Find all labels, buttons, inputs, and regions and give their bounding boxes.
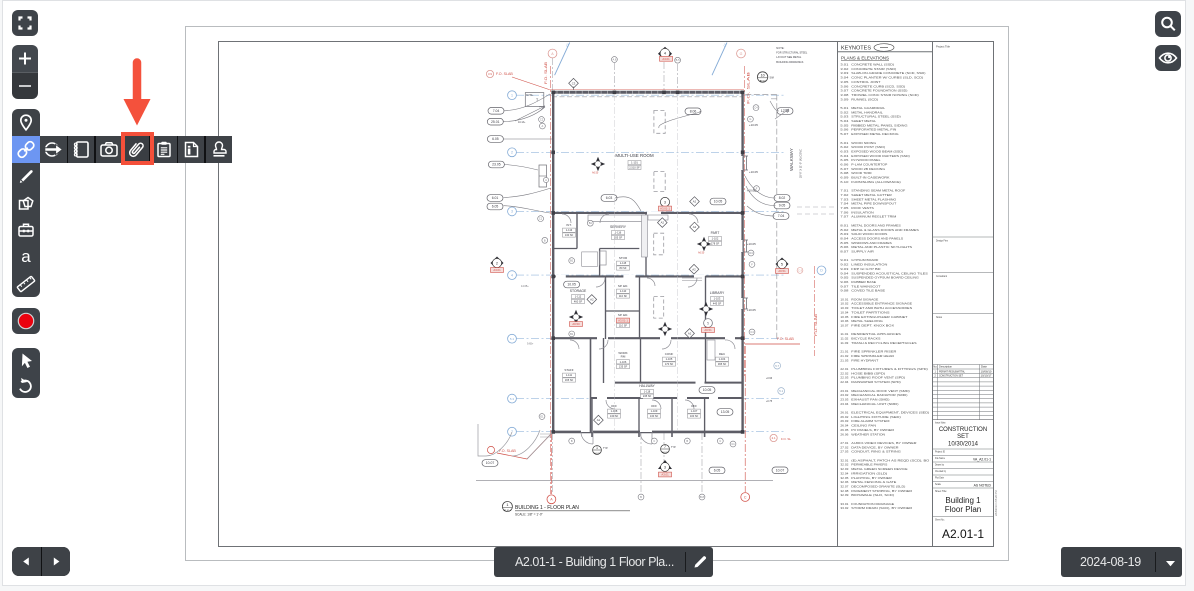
svg-text:A2: A2 (693, 200, 697, 204)
svg-text:7.07: 7.07 (840, 215, 849, 219)
svg-text:INT.: INT. (566, 223, 572, 227)
svg-text:6.02: 6.02 (840, 145, 849, 149)
svg-text:10.13+: 10.13+ (518, 121, 526, 124)
svg-text:9.05: 9.05 (840, 276, 849, 280)
svg-text:A2.01-1: A2.01-1 (504, 509, 512, 512)
svg-text:22.03: 22.03 (840, 376, 848, 380)
svg-text:A2: A2 (590, 298, 594, 302)
svg-text:5.1: 5.1 (779, 389, 783, 393)
svg-text:Notes: Notes (936, 315, 943, 319)
svg-text:6.08: 6.08 (840, 171, 849, 175)
svg-text:WINDOWS AND FRAMES: WINDOWS AND FRAMES (851, 241, 892, 245)
svg-text:26.06: 26.06 (840, 432, 848, 436)
svg-text:10/08/10: 10/08/10 (981, 370, 993, 373)
svg-text:PV PANELS, BY OWNER: PV PANELS, BY OWNER (851, 428, 894, 432)
svg-text:3.07: 3.07 (840, 89, 849, 93)
svg-text:A3.01: A3.01 (662, 57, 670, 61)
svg-text:165 SF: 165 SF (565, 378, 574, 382)
svg-text:27.02: 27.02 (840, 445, 848, 449)
svg-text:5.1: 5.1 (510, 337, 515, 341)
svg-text:A3.01-1: A3.01-1 (660, 207, 670, 211)
svg-text:C4: C4 (754, 106, 758, 110)
svg-text:32.02: 32.02 (840, 463, 848, 467)
svg-text:Project ID: Project ID (935, 451, 945, 454)
svg-text:F.O. SLAB: F.O. SLAB (747, 71, 751, 104)
svg-text:2/18/2013 1:55:26 PM: 2/18/2013 1:55:26 PM (994, 490, 998, 516)
svg-text:11.03: 11.03 (840, 341, 848, 345)
svg-text:RM: RM (621, 355, 626, 359)
svg-text:BIOSWALE (SLD, SCD): BIOSWALE (SLD, SCD) (851, 493, 894, 497)
svg-text:10/30/2014: 10/30/2014 (948, 442, 979, 448)
svg-text:FURNISHING (ALLOWANCE): FURNISHING (ALLOWANCE) (851, 180, 901, 184)
svg-text:245 SF: 245 SF (643, 394, 652, 398)
svg-text:WEATHER STATION: WEATHER STATION (851, 432, 885, 436)
svg-text:7.04: 7.04 (493, 109, 500, 113)
svg-text:KEYNOTES: KEYNOTES (841, 46, 871, 52)
svg-text:10/10/17: 10/10/17 (981, 375, 993, 378)
svg-text:1-118: 1-118 (644, 390, 651, 394)
svg-text:7.03: 7.03 (840, 197, 849, 201)
svg-text:EXPOSED WOOD RAFTERS (SSD): EXPOSED WOOD RAFTERS (SSD) (851, 154, 910, 158)
svg-text:9.05: 9.05 (779, 204, 786, 208)
svg-text:CONCRETE WALL (SSD): CONCRETE WALL (SSD) (851, 63, 894, 67)
svg-text:C: C (719, 439, 721, 443)
svg-text:FOR STRUCTURAL STEEL: FOR STRUCTURAL STEEL (776, 51, 807, 55)
svg-text:A3.01: A3.01 (661, 473, 669, 477)
svg-text:6.01: 6.01 (492, 196, 499, 200)
svg-text:9.01: 9.01 (840, 258, 849, 262)
svg-text:SERVERY: SERVERY (610, 225, 627, 229)
svg-text:1-101: 1-101 (631, 161, 638, 165)
svg-text:CONCRETE FOUNDATION (SSD): CONCRETE FOUNDATION (SSD) (851, 89, 907, 93)
svg-text:+10.05: +10.05 (749, 171, 759, 174)
svg-text:23.02: 23.02 (840, 393, 848, 397)
svg-text:ELECTRICAL EQUIPMENT, DEVICES: ELECTRICAL EQUIPMENT, DEVICES (SED) (851, 411, 929, 415)
svg-text:8.05: 8.05 (840, 241, 849, 245)
svg-text:7: 7 (664, 445, 666, 449)
svg-text:1-109: 1-109 (651, 409, 658, 413)
svg-text:A2: A2 (661, 221, 665, 225)
svg-text:130 SF: 130 SF (650, 414, 659, 418)
svg-text:CONF: CONF (665, 352, 674, 356)
svg-text:5.7: 5.7 (775, 364, 779, 368)
svg-text:A6.50: A6.50 (572, 322, 580, 326)
svg-text:EXPOSED METAL DECKING: EXPOSED METAL DECKING (851, 132, 899, 136)
svg-text:10.06: 10.06 (840, 319, 848, 323)
svg-text:Building 1: Building 1 (945, 496, 981, 505)
svg-text:1-106: 1-106 (620, 360, 627, 364)
svg-text:Consultant: Consultant (936, 274, 947, 278)
svg-text:ALUMINUM REGLET TRIM: ALUMINUM REGLET TRIM (851, 215, 897, 219)
svg-text:Plot Date: Plot Date (935, 477, 945, 480)
svg-text:STORAGE: STORAGE (570, 289, 587, 293)
svg-text:F.O. SLAB: F.O. SLAB (814, 313, 818, 336)
svg-text:B: B (571, 439, 573, 443)
svg-text:3: 3 (511, 210, 513, 214)
svg-text:STAFF: STAFF (564, 368, 573, 372)
svg-text:Design Firm: Design Firm (936, 239, 948, 243)
svg-text:CONSTRUCTION: CONSTRUCTION (939, 427, 987, 433)
svg-text:32.04: 32.04 (840, 471, 848, 475)
svg-text:32.09: 32.09 (840, 493, 848, 497)
svg-text:A6.51: A6.51 (704, 328, 712, 332)
svg-text:14.65+: 14.65+ (521, 285, 529, 288)
svg-text:B: B (686, 439, 688, 443)
svg-text:PLUMBING ROOF VENT (SPD): PLUMBING ROOF VENT (SPD) (851, 376, 905, 380)
svg-text:METAL HANDRAIL: METAL HANDRAIL (851, 110, 883, 114)
svg-text:METAL FENCING & GATE: METAL FENCING & GATE (851, 480, 896, 484)
svg-text:DATA DEVICE, BY OWNER: DATA DEVICE, BY OWNER (851, 445, 898, 449)
svg-text:+10.05: +10.05 (747, 309, 757, 312)
svg-text:10: 10 (761, 74, 765, 78)
svg-text:+0.96: +0.96 (766, 377, 773, 380)
svg-text:SHEET METAL: SHEET METAL (851, 119, 876, 123)
svg-text:Floor Plan: Floor Plan (945, 505, 981, 514)
svg-text:9.08: 9.08 (840, 289, 849, 293)
svg-text:Sheet No.:: Sheet No.: (935, 518, 945, 521)
svg-text:C.9: C.9 (798, 268, 803, 272)
svg-text:10.02: 10.02 (840, 302, 848, 306)
svg-text:9.07: 9.07 (840, 284, 849, 288)
svg-text:D: D (820, 269, 823, 273)
svg-text:4: 4 (664, 52, 666, 56)
svg-text:OFF: OFF (691, 404, 697, 408)
svg-text:F.O. SLAB: F.O. SLAB (496, 72, 513, 76)
svg-text:10.04: 10.04 (840, 310, 848, 314)
svg-text:AS NOTED: AS NOTED (974, 484, 992, 488)
svg-text:F.O. SL: F.O. SL (781, 437, 791, 441)
svg-text:CONDUIT, RING & STRING: CONDUIT, RING & STRING (851, 450, 902, 454)
svg-text:Checked by: Checked by (935, 470, 947, 473)
svg-text:1-104: 1-104 (719, 357, 726, 361)
svg-text:1-113: 1-113 (566, 228, 573, 232)
svg-text:3: 3 (664, 465, 666, 469)
svg-text:9.65+: 9.65+ (527, 343, 534, 346)
svg-text:10.07: 10.07 (840, 324, 848, 328)
svg-text:PART: PART (711, 231, 720, 235)
svg-text:1-103: 1-103 (714, 297, 721, 301)
svg-text:METAL DOORS AND FRAMES: METAL DOORS AND FRAMES (851, 223, 901, 227)
svg-text:TRASH & RECYCLING RECEPTACLES: TRASH & RECYCLING RECEPTACLES (851, 341, 916, 345)
svg-text:3.9: 3.9 (488, 72, 492, 76)
svg-text:30.55+: 30.55+ (526, 94, 534, 97)
svg-text:No.: No. (933, 366, 937, 369)
svg-text:C3: C3 (572, 81, 576, 85)
svg-text:3.09: 3.09 (840, 97, 849, 101)
svg-text:3.01: 3.01 (840, 63, 849, 67)
svg-text:LAYOUT SEE METAL: LAYOUT SEE METAL (776, 55, 801, 59)
svg-text:B1: B1 (570, 259, 574, 263)
svg-text:WOOD POST (SSD): WOOD POST (SSD) (851, 145, 885, 149)
svg-text:G: G (740, 52, 743, 56)
svg-text:8.02: 8.02 (779, 196, 786, 200)
svg-text:8.07: 8.07 (840, 250, 849, 254)
svg-text:METAL SHELVING: METAL SHELVING (851, 319, 883, 323)
svg-text:22.01: 22.01 (840, 367, 848, 371)
svg-text:WALKWAY: WALKWAY (789, 148, 794, 171)
svg-text:F.O. SLAB: F.O. SLAB (777, 337, 794, 341)
svg-text:SUPPLY AIR: SUPPLY AIR (851, 250, 874, 254)
svg-text:NOTE:: NOTE: (776, 46, 784, 50)
svg-text:C1: C1 (731, 442, 735, 446)
svg-text:395 SF: 395 SF (718, 362, 727, 366)
svg-text:9.03: 9.03 (840, 267, 849, 271)
svg-text:1-110: 1-110 (620, 289, 627, 293)
svg-text:10.05: 10.05 (703, 388, 712, 392)
svg-text:SET: SET (957, 434, 969, 440)
svg-text:1-116: 1-116 (615, 231, 622, 235)
svg-text:A6.02: A6.02 (662, 451, 669, 454)
svg-text:5: 5 (707, 321, 709, 325)
svg-text:1-112: 1-112 (575, 295, 582, 299)
svg-text:TYP.: TYP. (671, 446, 676, 449)
svg-text:33.02: 33.02 (840, 506, 848, 510)
svg-text:A2: A2 (693, 225, 697, 229)
svg-text:WOOD TRIM: WOOD TRIM (851, 171, 872, 175)
svg-text:FIRE ALARM SYSTEM: FIRE ALARM SYSTEM (851, 419, 890, 423)
svg-text:+0.75: +0.75 (766, 400, 773, 403)
svg-text:7.05: 7.05 (840, 206, 849, 210)
svg-text:1: 1 (511, 94, 513, 98)
svg-text:B: B (640, 495, 642, 499)
svg-text:B.5: B.5 (676, 58, 680, 62)
svg-text:178 SF: 178 SF (711, 241, 720, 245)
svg-text:IRRIGATION (SLD): IRRIGATION (SLD) (851, 471, 887, 475)
svg-text:8.03: 8.03 (840, 232, 849, 236)
svg-text:FIRE DEPT. KNOX BOX: FIRE DEPT. KNOX BOX (851, 324, 894, 328)
svg-text:+10.05: +10.05 (749, 124, 759, 127)
svg-text:BUILDING 1 - FLOOR PLAN: BUILDING 1 - FLOOR PLAN (515, 505, 579, 511)
svg-text:Drawn by: Drawn by (935, 464, 945, 467)
svg-text:10.07: 10.07 (486, 461, 495, 465)
svg-text:2: 2 (511, 151, 513, 155)
svg-text:6.05: 6.05 (714, 469, 721, 473)
svg-text:5.04: 5.04 (840, 119, 849, 123)
svg-text:PERMIT RESUBMITTAL: PERMIT RESUBMITTAL (939, 370, 966, 373)
svg-text:2: 2 (496, 261, 498, 265)
svg-text:8.01: 8.01 (840, 223, 849, 227)
svg-text:TOILET PARTITIONS: TOILET PARTITIONS (851, 310, 889, 314)
svg-text:8.06: 8.06 (690, 110, 697, 114)
svg-text:21.03: 21.03 (840, 358, 848, 362)
svg-text:A2.01-1: A2.01-1 (942, 527, 984, 541)
svg-text:10.07: 10.07 (776, 469, 785, 473)
svg-text:VA_A2.01-1: VA_A2.01-1 (973, 458, 991, 462)
svg-text:ACCESSIBLE ENTRANCE SIGNAGE: ACCESSIBLE ENTRANCE SIGNAGE (851, 302, 912, 306)
svg-text:SOLID WOOD DOORS: SOLID WOOD DOORS (851, 232, 887, 236)
svg-text:170 SF: 170 SF (665, 362, 674, 366)
svg-text:23.05: 23.05 (492, 163, 501, 167)
svg-text:A.6: A.6 (612, 58, 616, 62)
svg-text:MECHANICAL RADIATOR (SMD): MECHANICAL RADIATOR (SMD) (851, 393, 907, 397)
svg-text:205 SF: 205 SF (614, 235, 623, 239)
svg-text:HALLWAY: HALLWAY (639, 384, 655, 388)
svg-text:B1: B1 (570, 332, 574, 336)
svg-text:2.1: 2.1 (772, 436, 776, 440)
svg-text:Issue Note:: Issue Note: (935, 422, 946, 425)
svg-text:5.3: 5.3 (510, 397, 515, 401)
svg-text:SP. ED.: SP. ED. (618, 284, 628, 288)
svg-text:3.03: 3.03 (840, 71, 849, 75)
svg-text:1: 1 (506, 503, 508, 507)
svg-text:A6.51: A6.51 (778, 269, 786, 273)
svg-text:5.07: 5.07 (840, 132, 849, 136)
svg-text:130 SF: 130 SF (565, 233, 574, 237)
svg-text:A6.50: A6.50 (592, 172, 599, 175)
svg-text:MECHANICAL UNIT (SMD): MECHANICAL UNIT (SMD) (851, 402, 898, 406)
svg-text:C2: C2 (540, 118, 544, 122)
svg-text:21.01: 21.01 (840, 350, 848, 354)
svg-text:MULTI-USE ROOM: MULTI-USE ROOM (615, 153, 654, 158)
svg-text:A2: A2 (688, 332, 692, 336)
svg-text:80 SF: 80 SF (620, 266, 627, 270)
svg-text:C1: C1 (539, 217, 543, 221)
svg-text:E1: E1 (540, 415, 544, 419)
svg-text:SHEET METAL FLASHING: SHEET METAL FLASHING (851, 197, 897, 201)
svg-text:A6.50: A6.50 (698, 252, 705, 255)
svg-text:5.06: 5.06 (840, 128, 849, 132)
svg-text:1-105: 1-105 (666, 357, 673, 361)
svg-text:135 SF: 135 SF (619, 365, 628, 369)
svg-text:F.O. SLAB: F.O. SLAB (544, 61, 548, 84)
svg-text:26.01: 26.01 (840, 411, 848, 415)
svg-text:Date: Date (981, 366, 988, 369)
svg-text:ROOF VENTS: ROOF VENTS (851, 206, 874, 210)
svg-text:SCALE: 1/8" = 1'-0": SCALE: 1/8" = 1'-0" (515, 513, 543, 517)
svg-text:1-115: 1-115 (620, 261, 627, 265)
svg-text:460 SF: 460 SF (574, 299, 583, 303)
svg-text:+10.05: +10.05 (747, 189, 757, 192)
svg-text:32.08: 32.08 (840, 489, 848, 493)
svg-text:110 SF: 110 SF (619, 294, 628, 298)
svg-text:P-LAM COUNTERTOP: P-LAM COUNTERTOP (851, 163, 887, 167)
svg-text:RESIDENTIAL APPLIANCES: RESIDENTIAL APPLIANCES (851, 332, 901, 336)
svg-text:CONSTRUCTION SET: CONSTRUCTION SET (939, 375, 964, 378)
svg-text:32.06: 32.06 (840, 480, 848, 484)
svg-text:STORM DRAIN (SCD), BY OWNER: STORM DRAIN (SCD), BY OWNER (851, 506, 912, 510)
svg-text:C: C (744, 495, 747, 499)
svg-text:RUNNEL (SCD): RUNNEL (SCD) (851, 97, 878, 101)
svg-text:C: C (653, 439, 655, 443)
svg-text:B1: B1 (589, 221, 593, 225)
svg-text:LIBRARY: LIBRARY (710, 291, 725, 295)
svg-text:26.03: 26.03 (840, 419, 848, 423)
svg-text:7.01: 7.01 (840, 189, 849, 193)
svg-text:6.04: 6.04 (840, 154, 849, 158)
svg-text:RAINWATER SYSTEM (SPD): RAINWATER SYSTEM (SPD) (851, 380, 901, 384)
svg-text:110 SF: 110 SF (619, 324, 628, 328)
svg-text:1-111: 1-111 (566, 373, 573, 377)
svg-text:BUILDING DRAWINGS: BUILDING DRAWINGS (776, 60, 803, 64)
svg-text:445 SF: 445 SF (713, 301, 722, 305)
svg-text:10.05: 10.05 (714, 200, 723, 204)
svg-text:2,510 SF: 2,510 SF (629, 165, 640, 169)
svg-text:TILE WAINSCOT: TILE WAINSCOT (851, 284, 880, 288)
svg-text:6.05: 6.05 (492, 205, 499, 209)
svg-text:REC: REC (719, 352, 726, 356)
svg-text:6.06: 6.06 (840, 163, 849, 167)
svg-text:PLANS & ELEVATIONS: PLANS & ELEVATIONS (841, 56, 889, 61)
svg-text:G: G (749, 117, 751, 121)
svg-text:OFF: OFF (611, 404, 617, 408)
svg-text:PLUMBING FIXTURES & FITTINGS (: PLUMBING FIXTURES & FITTINGS (SPD) (851, 367, 928, 371)
svg-text:PERFORATED METAL FIN: PERFORATED METAL FIN (851, 128, 896, 132)
svg-text:Sheet Title:: Sheet Title: (935, 490, 947, 493)
svg-text:A1: A1 (597, 418, 601, 422)
svg-text:A2: A2 (692, 267, 696, 271)
svg-text:PERMEABLE PAVERS: PERMEABLE PAVERS (851, 463, 887, 467)
svg-text:STOR: STOR (619, 256, 628, 260)
svg-text:25'-0" X 11'-0" (N) CONC: 25'-0" X 11'-0" (N) CONC (799, 149, 803, 178)
svg-text:CONTROL JOINT: CONTROL JOINT (851, 80, 880, 84)
svg-text:D4: D4 (749, 251, 753, 255)
svg-text:26.05: 26.05 (840, 428, 848, 432)
svg-text:6.03: 6.03 (606, 196, 613, 200)
svg-text:STANDING SEAM METAL ROOF: STANDING SEAM METAL ROOF (851, 189, 905, 193)
svg-text:OFF: OFF (651, 404, 657, 408)
svg-text:SIM: SIM (770, 76, 774, 79)
svg-text:23.04: 23.04 (840, 402, 848, 406)
svg-text:TYP.: TYP. (603, 447, 608, 450)
svg-text:+10.05: +10.05 (747, 243, 757, 246)
svg-text:PAVEMENT STRIPING, BY OWNER: PAVEMENT STRIPING, BY OWNER (851, 489, 912, 493)
svg-text:A6.02: A6.02 (594, 452, 601, 455)
svg-text:SP. ED.: SP. ED. (618, 313, 628, 317)
svg-text:4: 4 (511, 273, 513, 277)
svg-text:File Name: File Name (935, 457, 946, 460)
svg-text:GYPSUM BOARD: GYPSUM BOARD (851, 258, 878, 262)
svg-text:C4: C4 (750, 330, 754, 334)
svg-text:1-107: 1-107 (691, 409, 698, 413)
svg-text:Scale: Scale (935, 483, 942, 486)
svg-text:A8.02: A8.02 (760, 79, 767, 82)
svg-text:13.05: 13.05 (721, 410, 730, 414)
svg-text:5: 5 (781, 262, 783, 266)
svg-text:11.01: 11.01 (840, 332, 848, 336)
svg-text:22.04: 22.04 (840, 380, 848, 384)
svg-text:1: 1 (596, 446, 598, 450)
svg-text:SUSPENDED GYPSUM BOARD CEILING: SUSPENDED GYPSUM BOARD CEILING (851, 276, 919, 280)
svg-text:3.05: 3.05 (840, 80, 849, 84)
svg-text:Description: Description (939, 366, 953, 369)
svg-text:A3.01-1: A3.01-1 (618, 319, 628, 323)
svg-text:F.O. SLAB: F.O. SLAB (499, 449, 516, 453)
svg-text:7.04: 7.04 (778, 214, 785, 218)
svg-text:FIRE SPRINKLER RISER: FIRE SPRINKLER RISER (851, 350, 896, 354)
svg-text:6.05: 6.05 (492, 137, 499, 141)
svg-text:A: A (542, 124, 544, 128)
svg-text:3: 3 (664, 200, 666, 204)
svg-text:100 SF: 100 SF (690, 414, 699, 418)
svg-text:27.03: 27.03 (840, 450, 848, 454)
svg-text:6.10: 6.10 (840, 180, 849, 184)
svg-text:10.05: 10.05 (567, 283, 576, 287)
svg-text:B: B (544, 238, 546, 242)
svg-text:B.8: B.8 (700, 495, 704, 499)
svg-text:25.01: 25.01 (491, 120, 500, 124)
svg-text:1-102: 1-102 (712, 237, 719, 241)
svg-text:FRP GI GYP BD: FRP GI GYP BD (851, 267, 880, 271)
svg-text:FIRE HYDRANT: FIRE HYDRANT (851, 358, 878, 362)
svg-text:Project Title: Project Title (936, 45, 950, 49)
svg-text:5.02: 5.02 (840, 110, 849, 114)
svg-text:SLAB-ON-GRADE CONCRETE (SCD, S: SLAB-ON-GRADE CONCRETE (SCD, SSD) (851, 71, 925, 75)
svg-text:A3.01: A3.01 (493, 268, 501, 272)
svg-text:COVED TILE BASE: COVED TILE BASE (851, 289, 885, 293)
